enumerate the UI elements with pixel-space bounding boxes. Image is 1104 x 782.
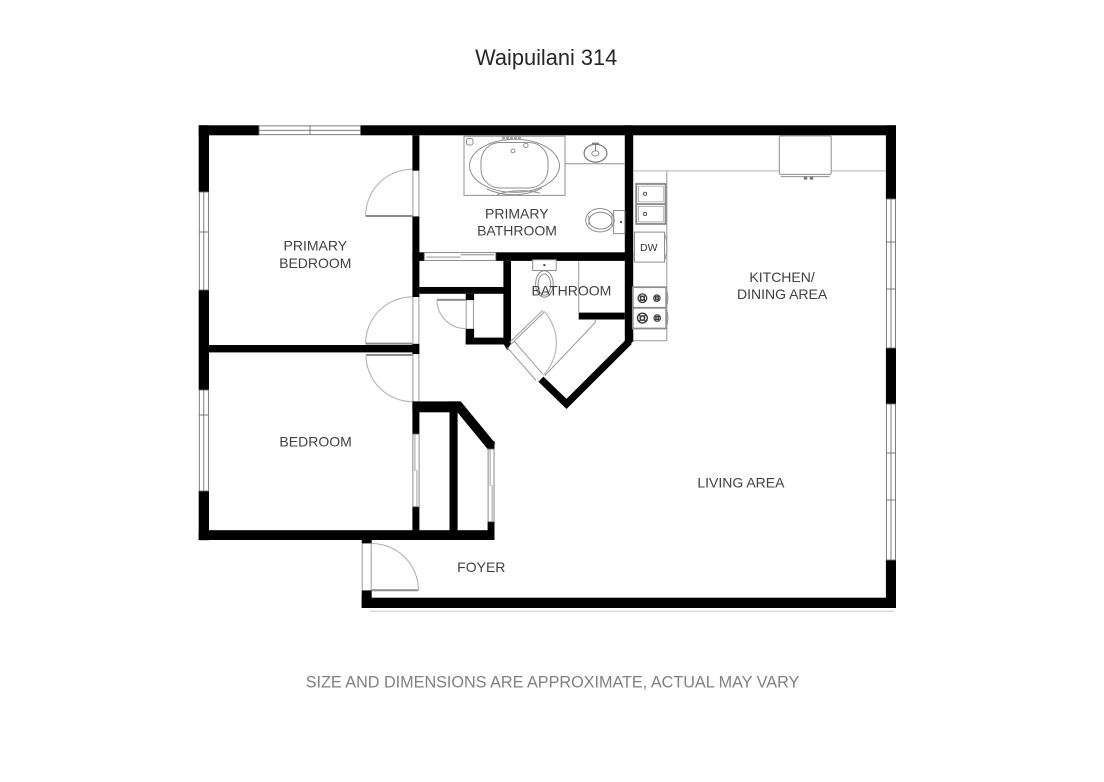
svg-text:BATHROOM: BATHROOM	[531, 283, 611, 299]
svg-text:KITCHEN/: KITCHEN/	[749, 269, 814, 285]
svg-text:BEDROOM: BEDROOM	[279, 255, 351, 271]
svg-text:BEDROOM: BEDROOM	[279, 433, 351, 449]
svg-text:BATHROOM: BATHROOM	[477, 222, 557, 238]
svg-text:PRIMARY: PRIMARY	[485, 205, 549, 221]
svg-text:Waipuilani 314: Waipuilani 314	[475, 45, 617, 70]
svg-text:DW: DW	[640, 242, 658, 254]
svg-text:FOYER: FOYER	[457, 559, 505, 575]
svg-text:DINING AREA: DINING AREA	[737, 286, 828, 302]
svg-text:SIZE AND DIMENSIONS ARE APPROX: SIZE AND DIMENSIONS ARE APPROXIMATE, ACT…	[306, 674, 800, 692]
svg-text:PRIMARY: PRIMARY	[284, 237, 348, 253]
svg-text:LIVING AREA: LIVING AREA	[697, 474, 785, 490]
